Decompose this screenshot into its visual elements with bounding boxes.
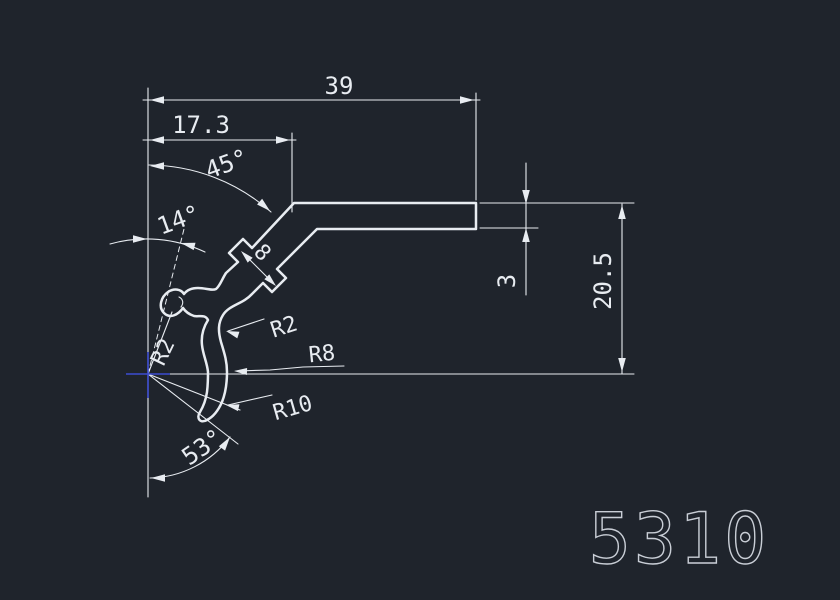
arrowhead [150,96,164,104]
dim-wall-thickness: 3 [493,163,530,295]
arrowhead [133,235,147,243]
cad-canvas[interactable]: 39 17.3 45° 14° 53° 3 20.5 [0,0,840,600]
profile-tip-notch [179,297,183,307]
dim-wall-thickness-label: 3 [493,274,521,288]
leader-line [236,366,344,371]
dim-mid-angle-label: 14° [153,199,203,240]
arrowhead [151,474,165,482]
radius-fillet-leader: R2 [225,311,301,343]
dim-total-width-label: 39 [325,72,354,100]
leader-line [228,319,264,331]
cad-drawing: 39 17.3 45° 14° 53° 3 20.5 [0,0,840,600]
dim-mid-angle: 14° [110,199,205,252]
dim-tab-gap: 8 [239,240,279,289]
radius-hook-leader: R10 [225,391,315,426]
radius-bend-leader: R8 [234,341,344,375]
arrowhead [150,162,164,170]
radius-hook-label: R10 [270,391,315,426]
leader-line [228,395,272,405]
dim-total-width: 39 [143,72,480,104]
dim-bottom-angle: 53° [150,423,233,482]
profile-outline [161,203,476,421]
arrowhead [618,358,626,372]
arrowhead [460,96,474,104]
radius-fillet-label: R2 [268,311,301,343]
arrowhead [180,239,195,250]
radius-bend-label: R8 [307,341,336,369]
arrowhead [522,190,530,204]
extension-lines [148,88,634,497]
arrowhead [276,136,290,144]
dim-top-angle-label: 45° [201,143,251,184]
arrowhead [150,136,164,144]
part-number-label: 5310 [589,498,770,580]
dim-upper-width-label: 17.3 [172,111,230,139]
dim-height-label: 20.5 [589,252,617,310]
profile [161,203,476,421]
arrowhead [618,205,626,219]
arrowhead [522,228,530,242]
angle53-reference-line [148,374,238,444]
dim-upper-width: 17.3 [143,111,296,144]
dim-height: 20.5 [589,204,626,374]
dim-top-angle: 45° [149,143,273,213]
